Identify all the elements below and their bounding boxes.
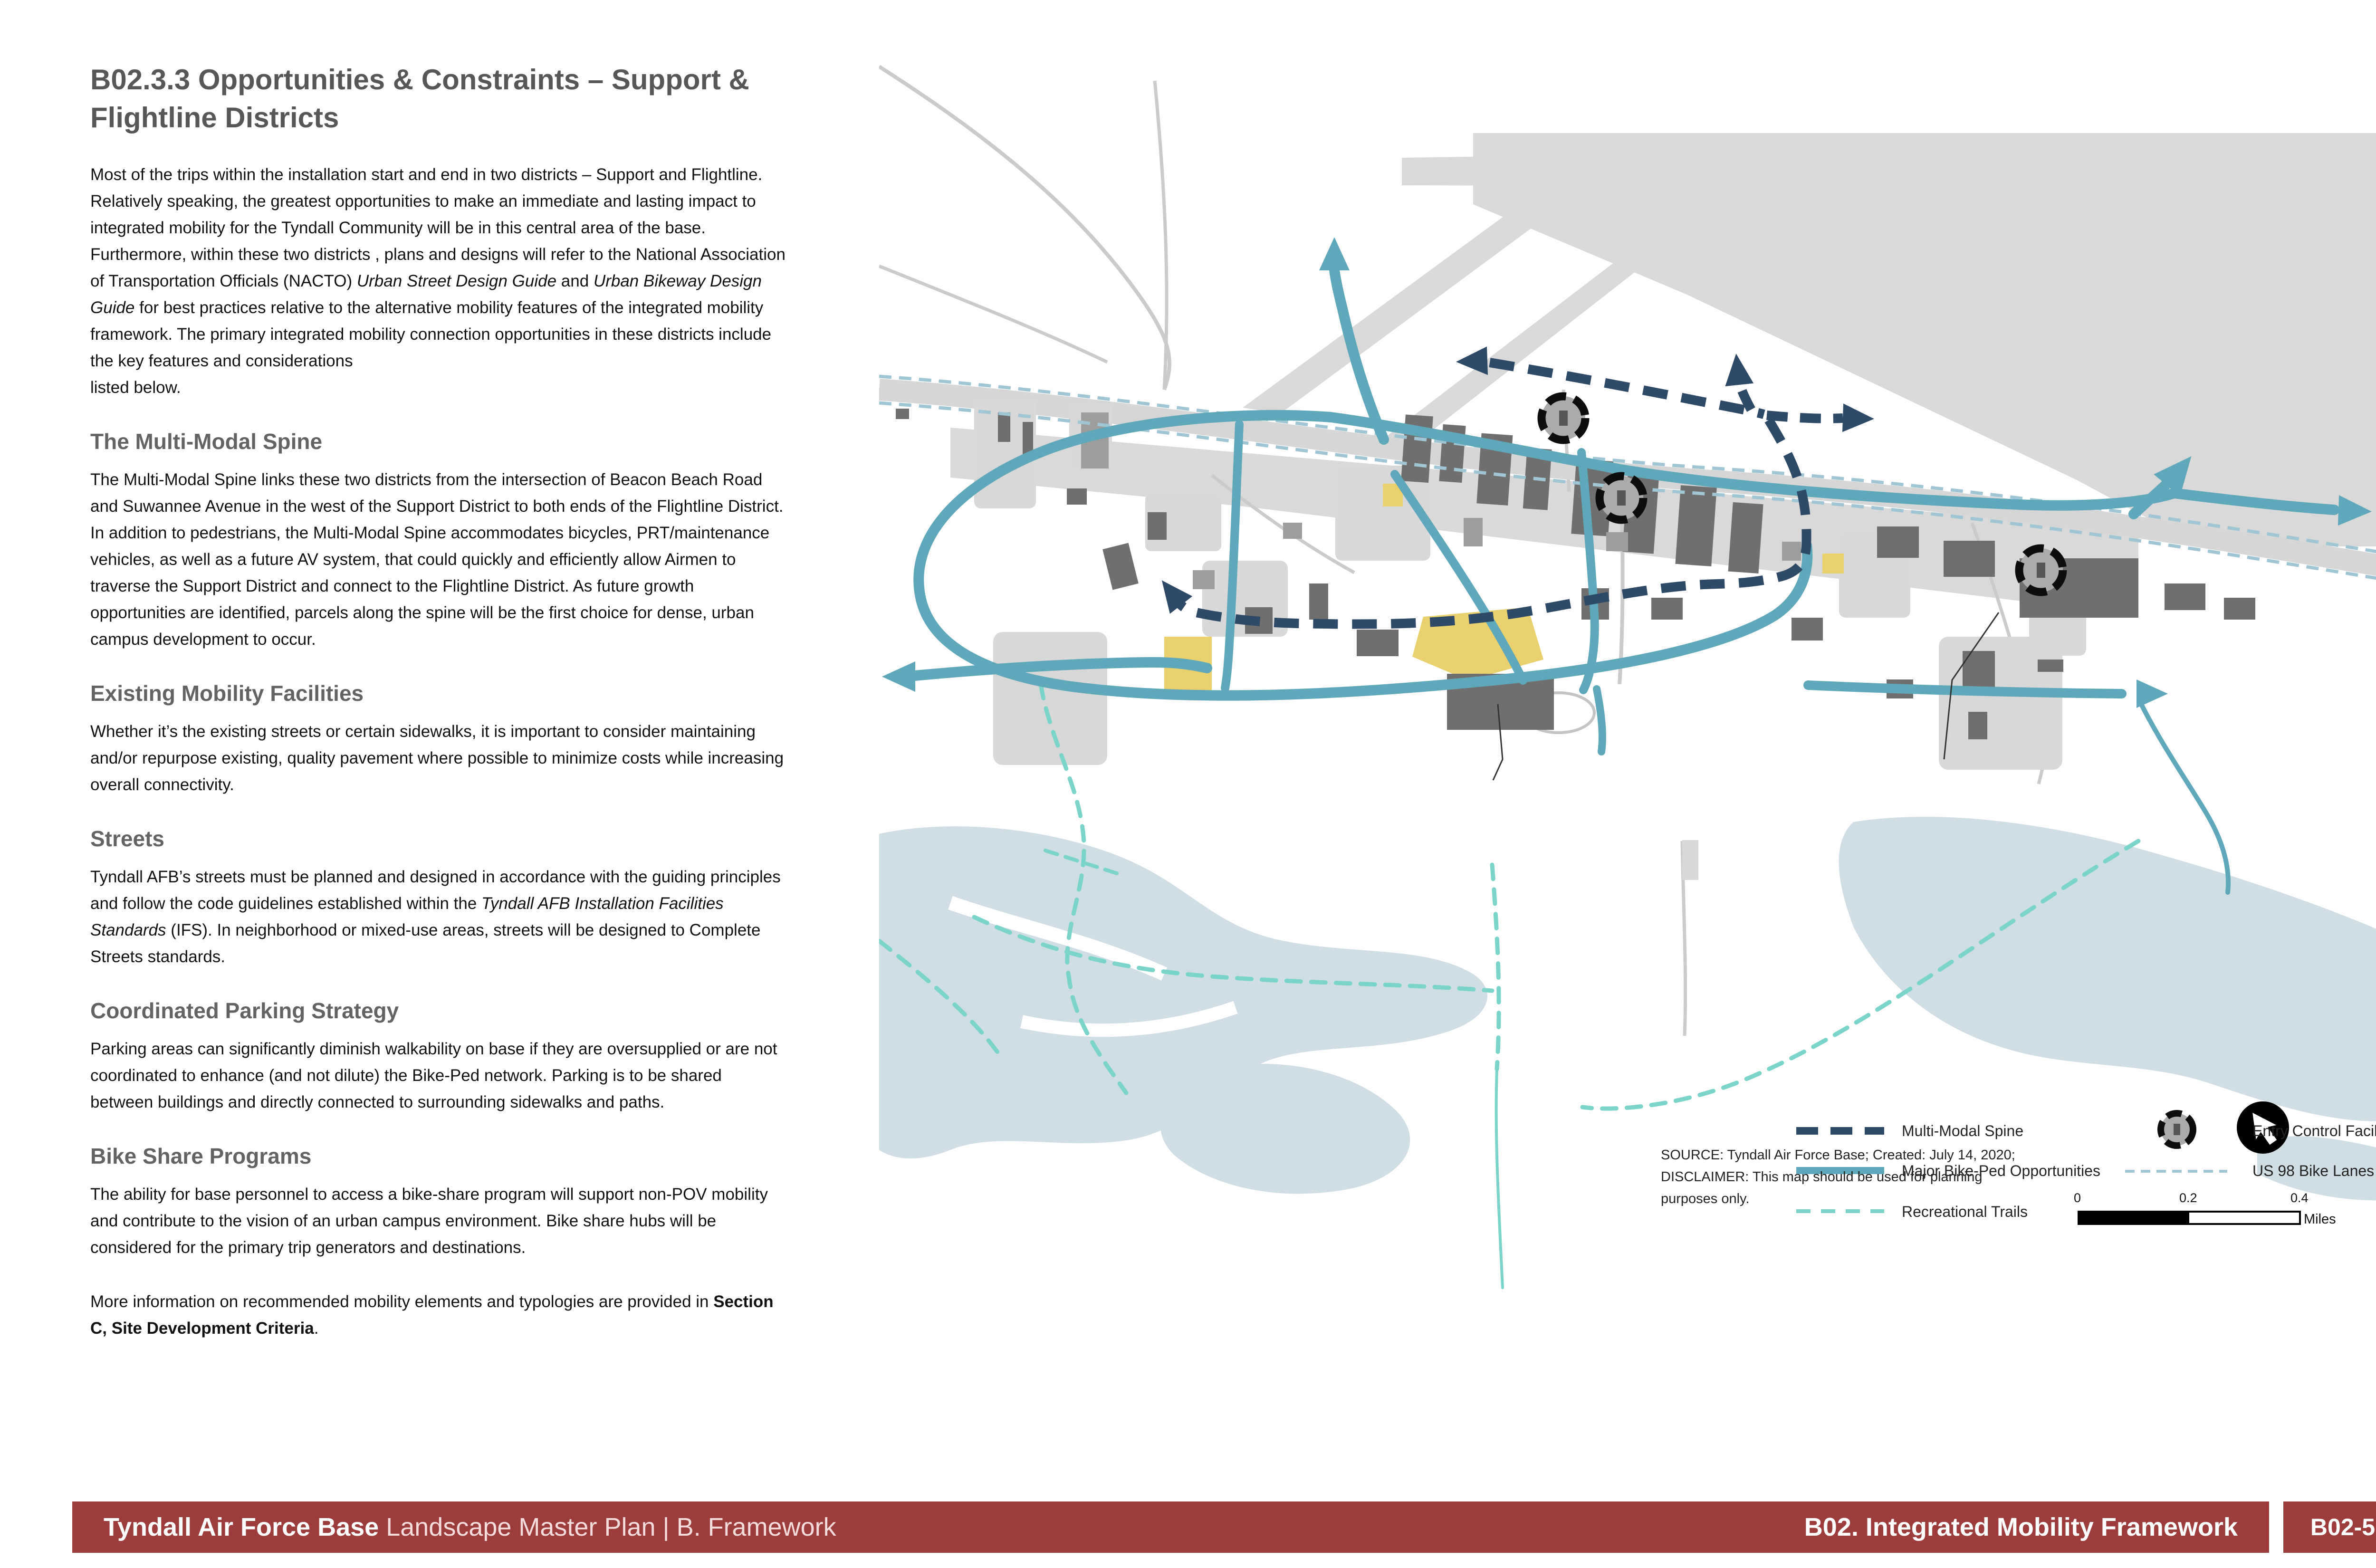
section-heading-bike-share: Bike Share Programs: [90, 1143, 803, 1169]
legend-entry-control-icon: [2151, 1103, 2203, 1156]
entry-control-facility-icon: [1542, 396, 1585, 440]
section-body-parking: Parking areas can significantly diminish…: [90, 1036, 789, 1116]
leader-lines: [1493, 612, 1999, 780]
document-page: B02.3.3 Opportunities & Constraints – Su…: [0, 0, 2376, 1568]
footer-section-title: B02. Integrated Mobility Framework: [1804, 1512, 2238, 1542]
legend-label-us98: US 98 Bike Lanes: [2252, 1162, 2374, 1180]
section-body-bike-share: The ability for base personnel to access…: [90, 1181, 789, 1261]
map-graphic: [879, 0, 2376, 1568]
section-heading-multi-modal-spine: The Multi-Modal Spine: [90, 429, 803, 454]
source-line-1: SOURCE: Tyndall Air Force Base; Created:…: [1661, 1144, 2015, 1166]
scale-bar-empty: [2189, 1213, 2299, 1223]
legend-sample-us98: [2125, 1170, 2227, 1173]
section-body-streets: Tyndall AFB’s streets must be planned an…: [90, 864, 789, 970]
section-body-existing-mobility: Whether it’s the existing streets or cer…: [90, 718, 789, 798]
legend-label-recreational-trails: Recreational Trails: [1902, 1203, 2028, 1221]
source-line-3: purposes only.: [1661, 1188, 1749, 1210]
scale-tick-0: 0: [2074, 1191, 2081, 1205]
scale-bar: [2078, 1211, 2301, 1225]
section-heading-existing-mobility: Existing Mobility Facilities: [90, 680, 803, 706]
legend-sample-multi-modal-spine: [1796, 1127, 1884, 1135]
article-column: B02.3.3 Opportunities & Constraints – Su…: [90, 61, 803, 1342]
closing-paragraph: More information on recommended mobility…: [90, 1289, 789, 1342]
scale-tick-04: 0.4: [2290, 1191, 2309, 1205]
section-body-multi-modal-spine: The Multi-Modal Spine links these two di…: [90, 467, 789, 653]
legend-label-entry-control: Entry Control Facility: [2252, 1122, 2376, 1140]
page-title: B02.3.3 Opportunities & Constraints – Su…: [90, 61, 803, 137]
entry-control-facility-icon: [2019, 548, 2063, 592]
legend-sample-recreational-trails: [1796, 1209, 1884, 1213]
mobility-framework-map: Multi-Modal Spine Entry Control Facility…: [879, 0, 2376, 1568]
scale-unit-label: Miles: [2304, 1212, 2336, 1227]
water-bodies: [879, 528, 2376, 1200]
footer-base-name: Tyndall Air Force Base: [104, 1513, 379, 1541]
source-line-2: DISCLAIMER: This map should be used for …: [1661, 1166, 1983, 1188]
scale-tick-02: 0.2: [2179, 1191, 2197, 1205]
section-heading-streets: Streets: [90, 826, 803, 851]
footer-document-title: Tyndall Air Force Base Landscape Master …: [104, 1512, 836, 1542]
entry-control-facility-icon: [1600, 476, 1643, 520]
section-heading-parking: Coordinated Parking Strategy: [90, 998, 803, 1023]
footer-page-number: B02-5: [2283, 1501, 2376, 1553]
footer-bar: Tyndall Air Force Base Landscape Master …: [72, 1501, 2269, 1553]
footer-plan-name: Landscape Master Plan | B. Framework: [379, 1513, 836, 1541]
intro-paragraph: Most of the trips within the installatio…: [90, 162, 789, 401]
legend-label-multi-modal-spine: Multi-Modal Spine: [1902, 1122, 2023, 1140]
scale-bar-filled: [2079, 1213, 2189, 1223]
